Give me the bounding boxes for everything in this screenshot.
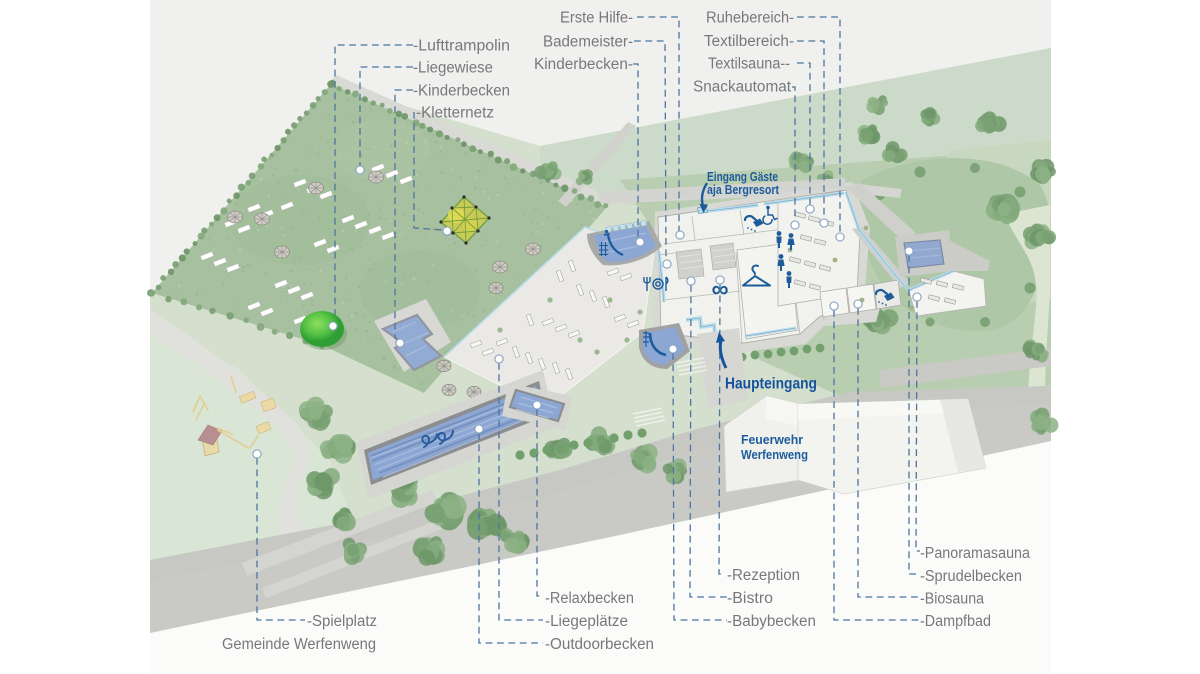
- svg-text:Eingang Gäste: Eingang Gäste: [707, 170, 778, 184]
- svg-text:-Babybecken: -Babybecken: [727, 613, 816, 630]
- svg-text:-Sprudelbecken: -Sprudelbecken: [920, 568, 1022, 585]
- svg-text:-Bistro: -Bistro: [727, 590, 773, 607]
- svg-text:-Liegeplätze: -Liegeplätze: [545, 613, 628, 630]
- svg-text:-Dampfbad: -Dampfbad: [920, 613, 991, 630]
- svg-text:Haupteingang: Haupteingang: [725, 376, 817, 393]
- svg-text:-Rezeption: -Rezeption: [727, 567, 800, 584]
- svg-text:Textilbereich-: Textilbereich-: [704, 33, 794, 50]
- svg-text:-Outdoorbecken: -Outdoorbecken: [545, 636, 654, 653]
- svg-text:-Relaxbecken: -Relaxbecken: [545, 590, 634, 607]
- svg-text:Kinderbecken-: Kinderbecken-: [534, 56, 633, 73]
- svg-text:Werfenweng: Werfenweng: [741, 447, 808, 462]
- svg-text:Ruhebereich-: Ruhebereich-: [706, 10, 794, 27]
- svg-text:Bademeister-: Bademeister-: [543, 34, 633, 51]
- svg-text:Erste Hilfe-: Erste Hilfe-: [560, 10, 633, 27]
- svg-text:Feuerwehr: Feuerwehr: [741, 432, 803, 447]
- svg-text:Snackautomat: Snackautomat: [693, 79, 792, 96]
- svg-text:-Biosauna: -Biosauna: [920, 591, 984, 608]
- svg-text:-Liegewiese: -Liegewiese: [413, 60, 493, 77]
- svg-text:aja Bergresort: aja Bergresort: [707, 183, 780, 197]
- svg-text:Textilsauna--: Textilsauna--: [708, 56, 790, 73]
- svg-text:-Kletternetz: -Kletternetz: [416, 105, 494, 122]
- svg-text:-Lufttrampolin: -Lufttrampolin: [413, 38, 510, 55]
- svg-text:Gemeinde Werfenweng: Gemeinde Werfenweng: [222, 636, 376, 653]
- svg-text:-Spielplatz: -Spielplatz: [307, 613, 377, 630]
- svg-text:-Kinderbecken: -Kinderbecken: [413, 83, 510, 100]
- svg-text:-Panoramasauna: -Panoramasauna: [920, 545, 1030, 562]
